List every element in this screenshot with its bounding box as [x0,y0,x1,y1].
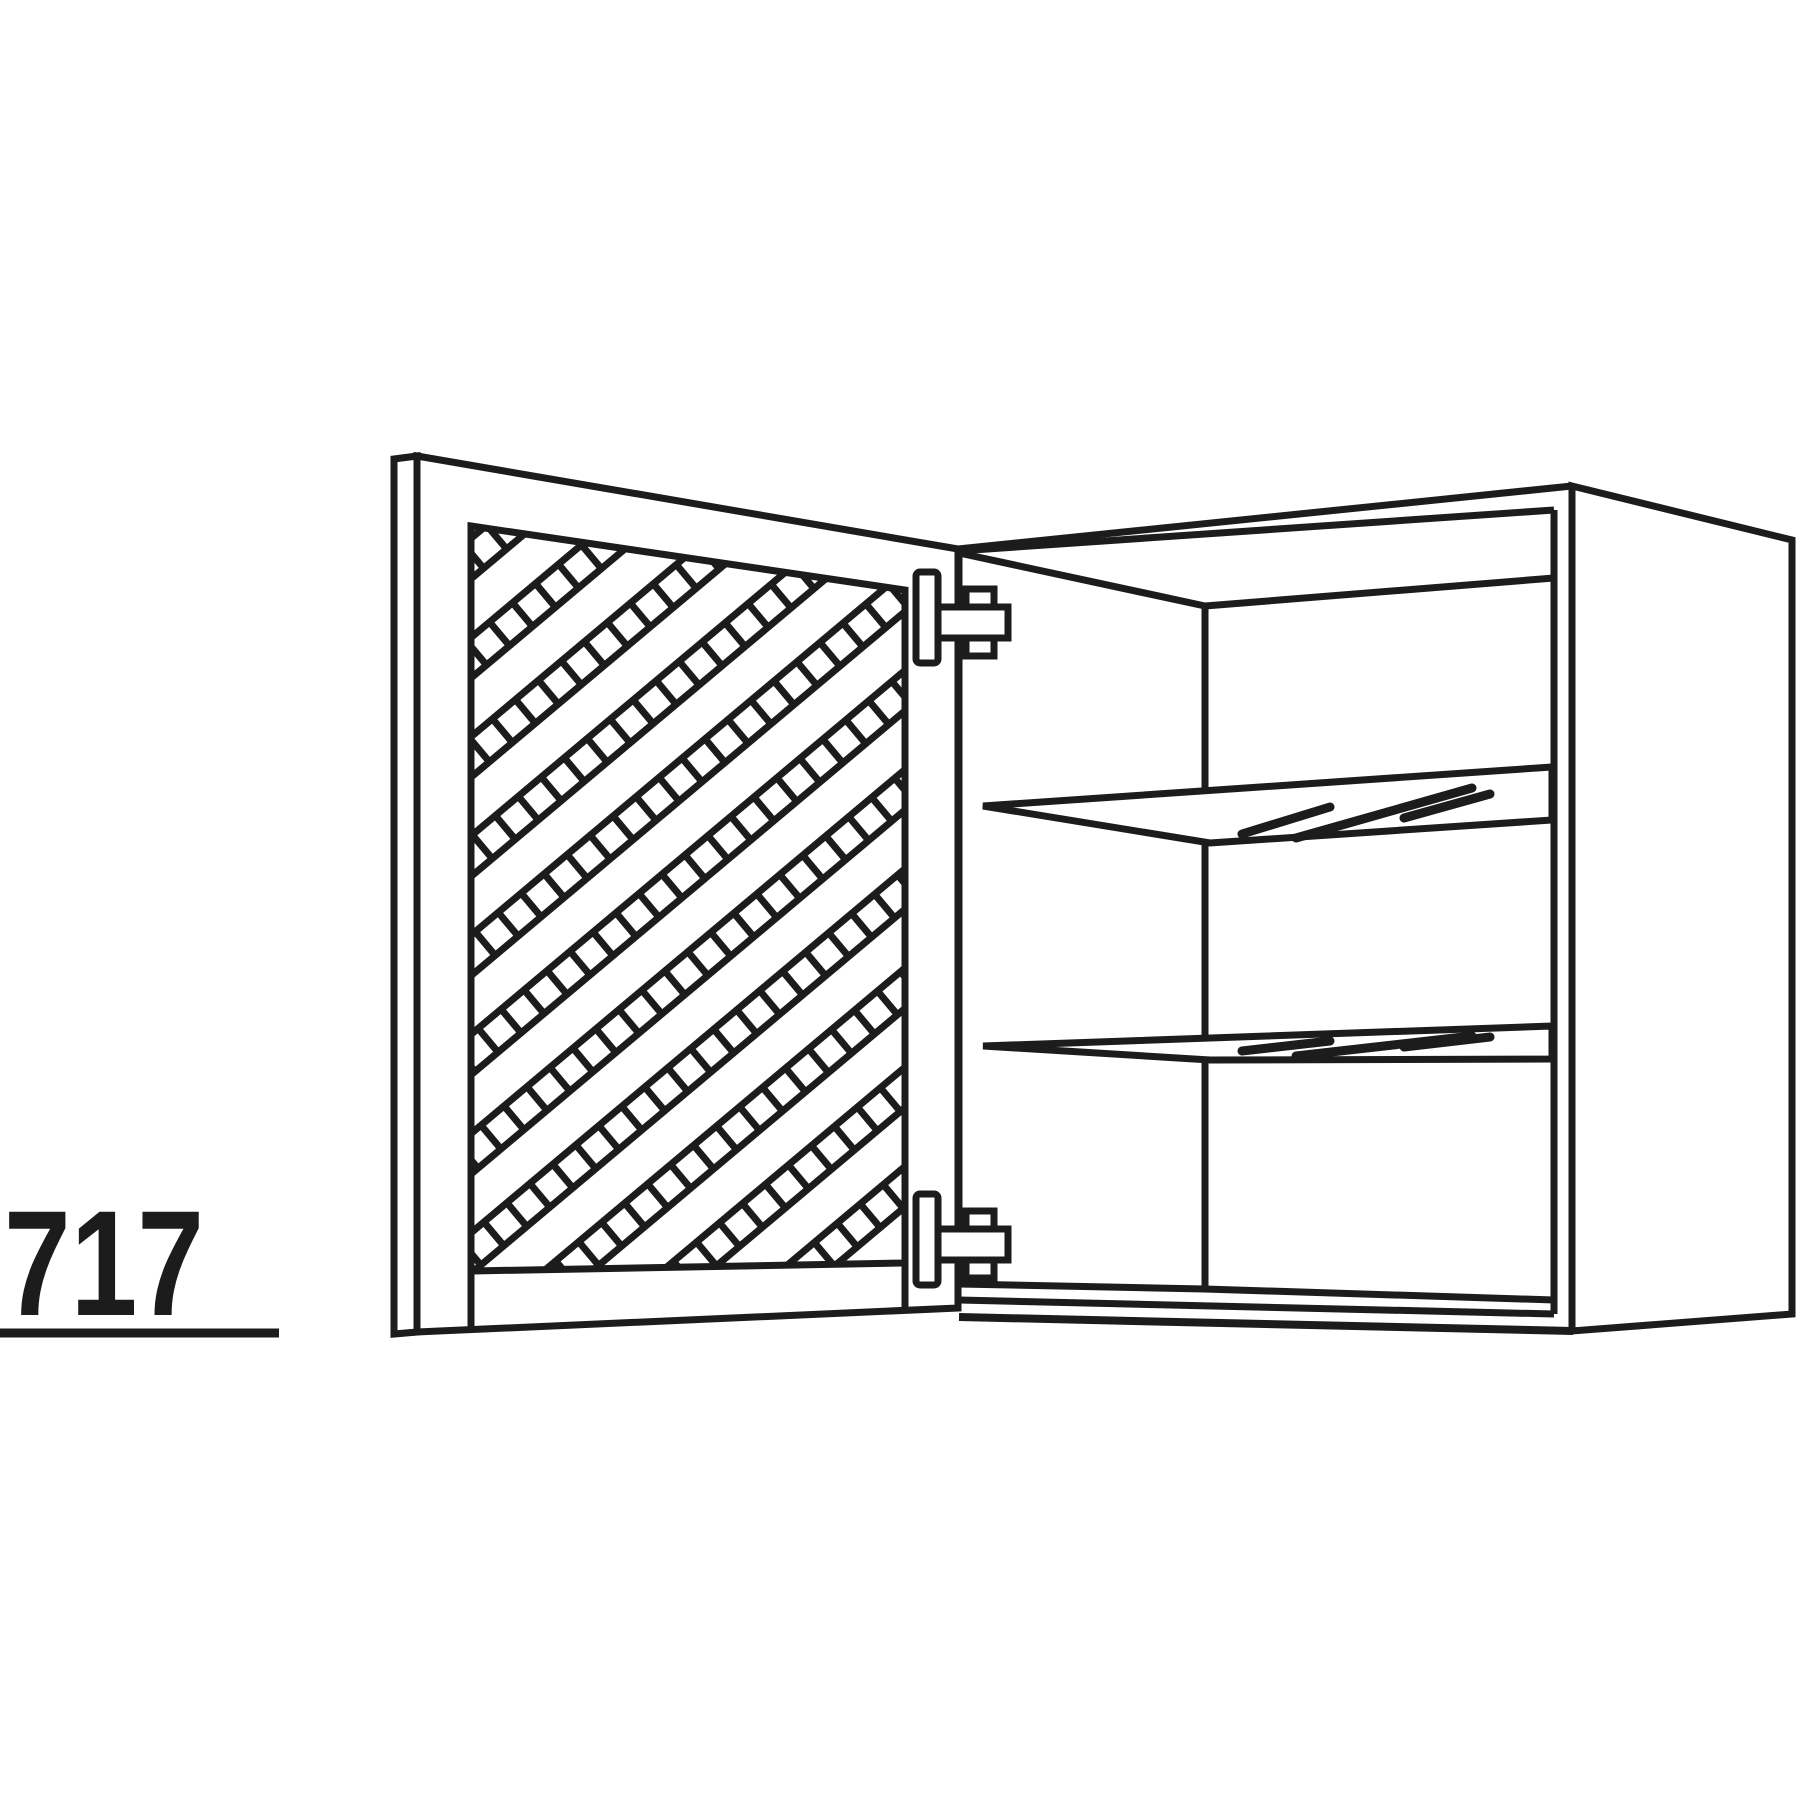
right-side-panel [1554,486,1792,1331]
carcass-bottom-outer-edge [959,1317,1573,1331]
cabinet-carcass [958,486,1573,1331]
bottom-panel-back-edge [959,1284,1554,1300]
cabinet-line-drawing: 717 [0,0,1800,1800]
hinge-arm [938,607,1008,638]
door-lattice-panel [471,526,905,1271]
glass-shelf-upper [983,767,1552,843]
dimension-label: 717 [0,1179,279,1347]
bottom-panel-front-edge [959,1300,1554,1314]
right-side-panel-face [1572,486,1792,1331]
cabinet-diagram-page: 717 [0,0,1800,1800]
hinge-arm [938,1229,1008,1260]
dimension-value: 717 [4,1179,204,1347]
lattice-door [394,456,958,1334]
glass-shelf-lower [983,1026,1552,1060]
carcass-interior-back-top-edge [1205,578,1554,606]
